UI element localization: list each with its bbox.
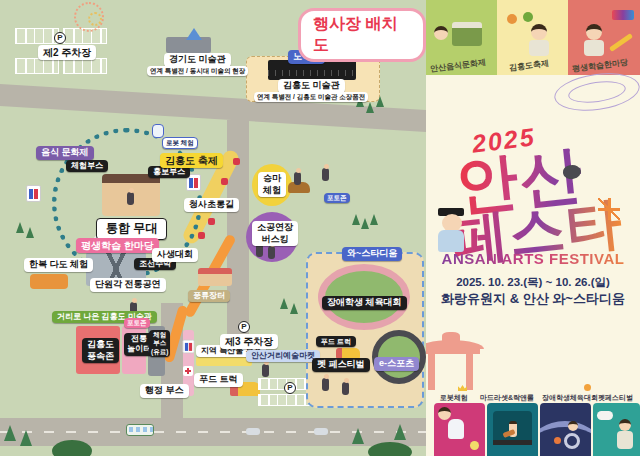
pavilion-gate-icon — [426, 340, 484, 349]
boy-body — [617, 431, 633, 449]
program-label-pet-festival: 펫페스티벌 — [598, 393, 633, 403]
poster-venue: 화랑유원지 & 안산 와~스타디움 — [426, 290, 640, 308]
tea-mat-illustration — [30, 274, 68, 289]
lantern-icon — [221, 178, 228, 185]
photozone-horse-label: 포토존 — [324, 193, 350, 203]
parking2-stalls — [15, 28, 59, 44]
sun-icon — [584, 384, 591, 391]
fireworks-icon — [88, 12, 102, 26]
mascot-body — [438, 230, 464, 252]
program-card-disabled-sports — [540, 403, 591, 456]
kimhongdo-museum-label: 김홍도 미술관 — [278, 79, 345, 93]
tree-icon — [20, 430, 32, 446]
admin-booth-label: 행정 부스 — [140, 384, 189, 398]
kimhongdo-festival-label: 김홍도 축제 — [160, 153, 223, 168]
performer-figure — [127, 192, 134, 205]
parking2-stalls — [63, 58, 107, 74]
sketch-contest-label: 사생대회 — [152, 248, 198, 262]
tree-icon — [280, 298, 288, 309]
first-aid-icon — [183, 366, 193, 376]
character-illustration — [531, 24, 547, 40]
bush-icon — [52, 440, 92, 456]
wheelchair-athlete-figure — [568, 421, 578, 431]
bus-icon — [126, 424, 154, 436]
lantern-icon — [198, 232, 205, 239]
tree-icon — [16, 222, 24, 233]
tree-illustration — [523, 12, 533, 22]
program-label-band: 마드라셋&락앤롤 — [480, 393, 534, 403]
restroom-icon — [183, 340, 195, 354]
map-title: 행사장 배치도 — [298, 8, 426, 62]
parking2-label: 제2 주차장 — [38, 45, 96, 60]
tree-icon — [352, 428, 364, 444]
lifelong-learning-label: 평생학습 한마당 — [76, 238, 159, 253]
rabbit-icon — [597, 411, 613, 420]
robot-experience-label: 로봇 체험 — [162, 137, 198, 149]
banner-card-food-festival: 안산음식문화제 — [426, 0, 497, 75]
busking-label: 소공연장 버스킹 — [252, 221, 298, 246]
pungnyu-market-label: 풍류장터 — [188, 290, 230, 302]
pavilion-gate-icon — [428, 354, 435, 390]
parking-p-icon: P — [238, 321, 250, 333]
robot-icon — [152, 124, 164, 138]
rider-figure — [294, 172, 301, 185]
character-illustration — [586, 24, 602, 40]
lantern-icon — [233, 158, 240, 165]
banner-card-lifelong-learning: 평생학습한마당 — [568, 0, 640, 75]
character-body — [584, 40, 604, 56]
poster-subtitle: ANSAN ARTS FESTIVAL — [426, 250, 640, 267]
tree-icon — [370, 214, 378, 225]
tree-icon — [376, 96, 384, 107]
program-card-robot — [434, 403, 485, 456]
kimhongdo-museum-sublabel: 연계 특별전 / 김홍도 미술관 소장품전 — [254, 92, 368, 102]
tree-icon — [394, 424, 406, 440]
tree-icon — [352, 214, 360, 225]
boy-with-pet-figure — [619, 419, 631, 431]
lightbulb-icon — [470, 441, 479, 450]
pavilion-gate-icon — [466, 354, 473, 390]
breakdancer-figure — [262, 364, 269, 377]
street-art-market-label: 안산거리예술마켓 — [246, 350, 320, 362]
character-face — [438, 407, 451, 420]
disabled-sports-label: 장애학생 체육대회 — [322, 296, 407, 310]
gyeonggi-museum-label: 경기도 미술관 — [164, 53, 231, 67]
parking3-stalls — [258, 394, 312, 406]
tree-icon — [4, 425, 16, 441]
poster-dates: 2025. 10. 23.(목) ~ 10. 26.(일) — [426, 275, 640, 290]
hanbok-tea-label: 한복 다도 체험 — [24, 258, 93, 272]
busker-figure — [268, 246, 275, 259]
local-products-strip — [196, 357, 252, 366]
food-culture-label: 음식 문화제 — [36, 146, 94, 160]
banner-card-label: 안산음식문화제 — [430, 57, 487, 75]
tree-icon — [361, 218, 369, 229]
pencil-icon — [609, 33, 633, 52]
exp-booth-paid-label: 체험 부스 (유료) — [149, 330, 170, 357]
banner-card-kimhongdo-festival: 김홍도축제 — [497, 0, 568, 75]
venue-map: P 제2 주차장 경기도 미술관 연계 특별전 / 동시대 미술의 현장 노적봉… — [0, 0, 426, 456]
rainbow-sign-icon — [612, 10, 634, 20]
experience-booth-label: 체험부스 — [66, 160, 108, 172]
pet-figure — [322, 378, 329, 391]
car-icon — [246, 428, 260, 435]
pavilion-gate-icon — [442, 332, 460, 341]
tree-illustration — [507, 14, 517, 24]
program-label-disabled-sports: 장애학생체육대회 — [542, 393, 598, 403]
robot-icon — [448, 419, 464, 439]
photozone-figure — [322, 168, 329, 181]
food-cart-icon — [452, 22, 482, 46]
basketball-icon — [554, 437, 561, 444]
restroom-icon — [26, 185, 41, 202]
wheelchair-icon — [564, 433, 580, 449]
festival-poster: 안산음식문화제 김홍도축제 평생학습한마당 2025 안산 페스타 — [426, 0, 640, 456]
tree-icon — [290, 303, 298, 314]
banner-card-label: 평생학습한마당 — [572, 57, 629, 75]
stadium-food-truck-label: 푸드 트럭 — [316, 336, 356, 347]
market-stall-icon — [198, 268, 232, 286]
tree-icon — [366, 102, 374, 113]
pet-festival-label: 펫 페스티벌 — [312, 358, 370, 372]
program-card-band — [487, 403, 538, 456]
stadium-label: 와~스타디움 — [342, 247, 402, 261]
sparkle-icon — [598, 198, 620, 220]
program-card-pet-festival — [593, 403, 640, 456]
gyeonggi-museum-roof — [186, 28, 202, 40]
parking-p-icon: P — [54, 32, 66, 44]
program-label-robot: 로봇체험 — [440, 393, 468, 403]
danwongak-label: 단원각 전통공연 — [90, 278, 166, 292]
lantern-icon — [208, 218, 215, 225]
festival-map-screenshot: P 제2 주차장 경기도 미술관 연계 특별전 / 동시대 미술의 현장 노적봉… — [0, 0, 640, 456]
parking2-stalls — [15, 58, 59, 74]
tree-icon — [26, 227, 34, 238]
photozone-street-label: 포토존 — [124, 318, 150, 328]
food-truck-label: 푸드 트럭 — [194, 373, 243, 387]
character-illustration — [434, 26, 448, 40]
folk-zone-label: 김홍도 풍속존 — [82, 338, 119, 363]
banner-card-label: 김홍도축제 — [508, 58, 549, 74]
pet-figure — [342, 382, 349, 395]
main-stage-label: 통합 무대 — [96, 218, 167, 240]
esports-label: e-스포츠 — [374, 357, 419, 371]
parking-p-icon: P — [284, 382, 296, 394]
lantern-road-label: 청사초롱길 — [184, 198, 239, 212]
horse-riding-label: 승마 체험 — [258, 172, 286, 197]
character-body — [529, 40, 549, 56]
bush-icon — [368, 442, 412, 456]
parking3-label: 제3 주차장 — [220, 334, 278, 349]
gyeonggi-museum-sublabel: 연계 특별전 / 동시대 미술의 현장 — [147, 66, 248, 76]
car-icon — [314, 428, 328, 435]
